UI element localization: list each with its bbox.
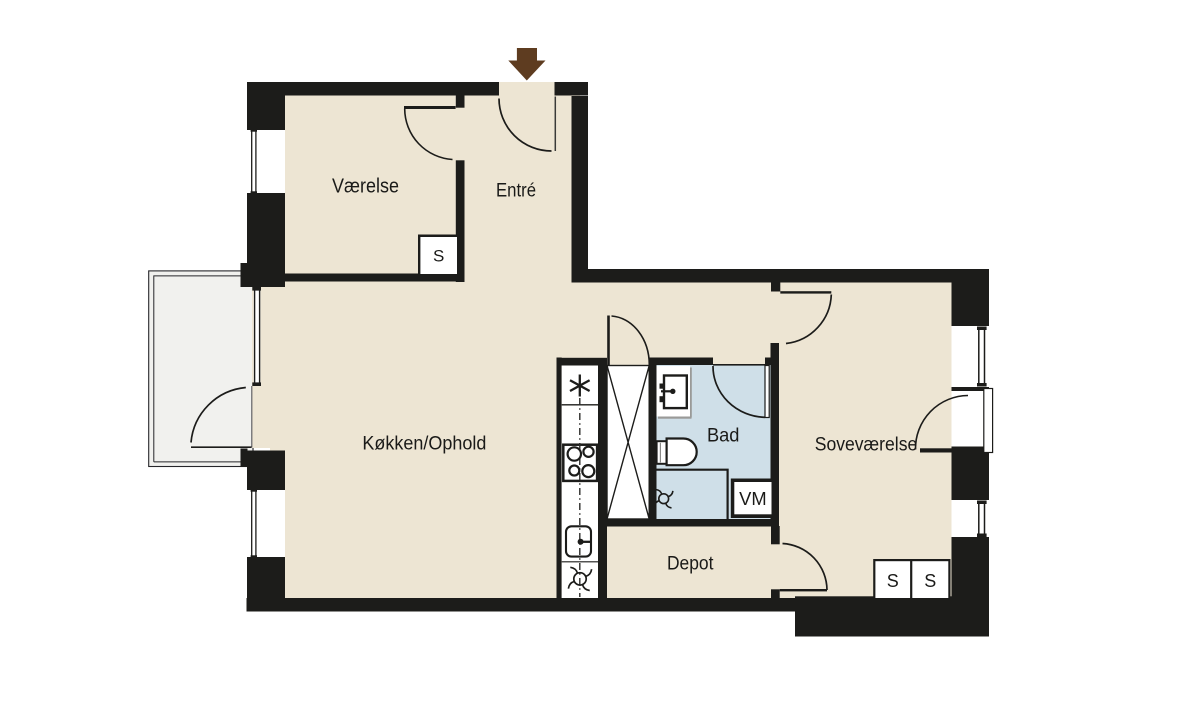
- svg-text:Bad: Bad: [707, 425, 740, 446]
- svg-text:Depot: Depot: [667, 554, 714, 575]
- svg-text:Entré: Entré: [496, 180, 536, 202]
- svg-text:S: S: [433, 246, 444, 265]
- svg-text:Soveværelse: Soveværelse: [815, 435, 918, 456]
- svg-text:Værelse: Værelse: [332, 175, 399, 198]
- svg-text:S: S: [924, 571, 936, 591]
- svg-text:Køkken/Ophold: Køkken/Ophold: [362, 433, 486, 455]
- svg-text:VM: VM: [739, 488, 767, 509]
- svg-text:S: S: [887, 571, 899, 591]
